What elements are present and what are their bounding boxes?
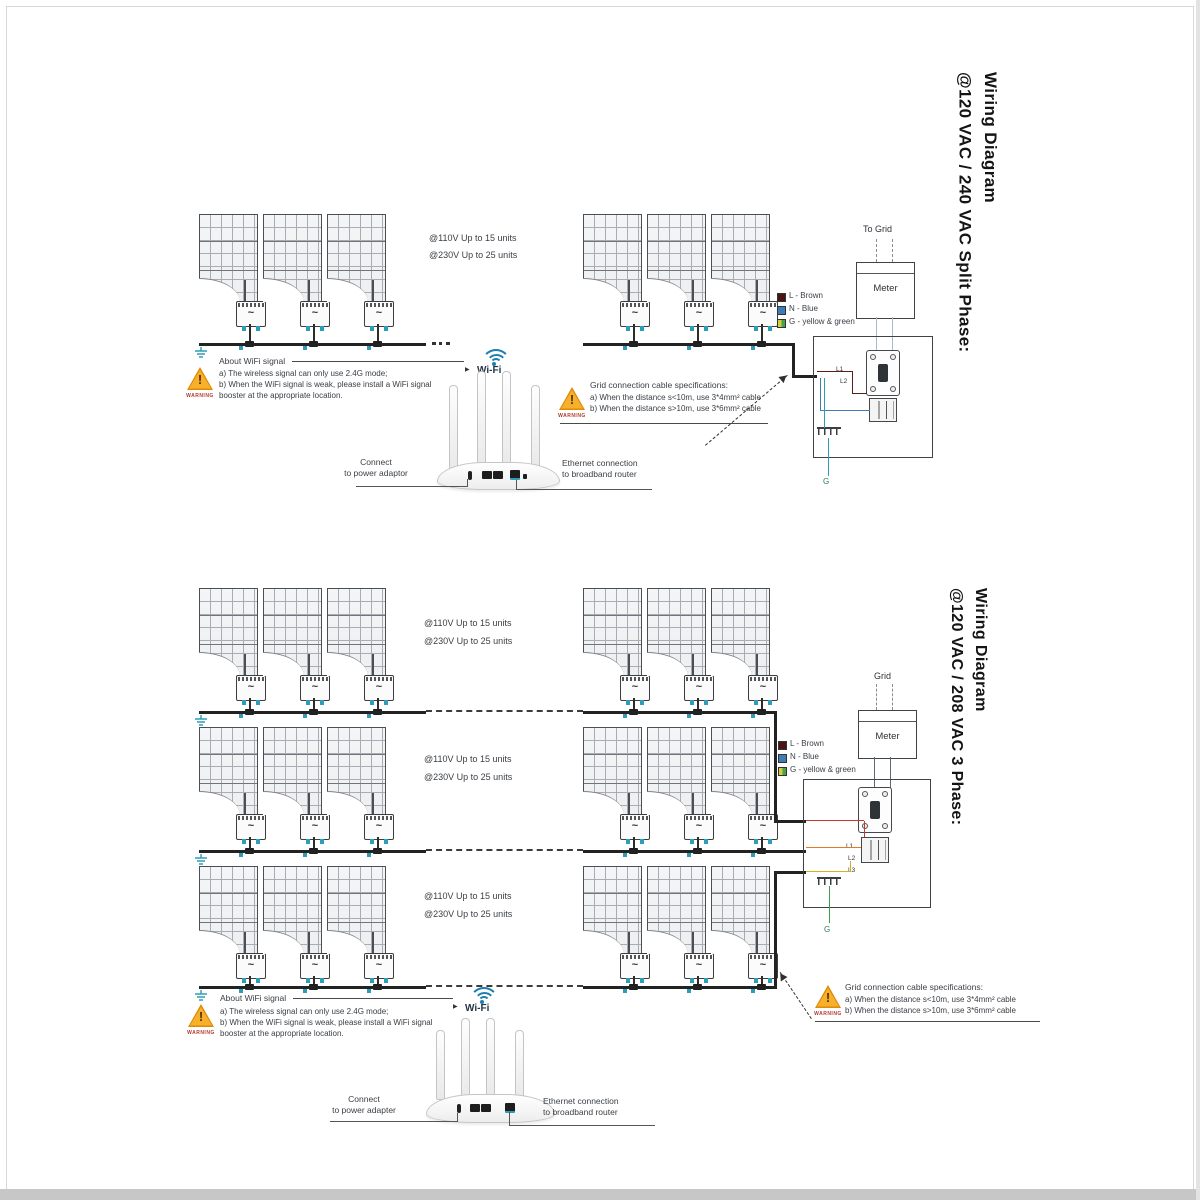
connector-lock-icon [687, 853, 691, 857]
callout-line [509, 1112, 510, 1126]
connector-lock-icon [303, 714, 307, 718]
panel-cable [628, 654, 630, 676]
cable-warning-line: a) When the distance s<10m, use 3*4mm² c… [845, 994, 1016, 1005]
terminal-block [861, 837, 889, 863]
solar-panel [583, 214, 642, 302]
router-ethernet-port [510, 470, 520, 480]
solar-panel [647, 588, 706, 676]
solar-panel [711, 866, 770, 954]
connector-lock-icon [239, 714, 243, 718]
solar-panel [647, 214, 706, 302]
panel-cable [628, 932, 630, 954]
microinverter [684, 301, 714, 327]
pointer-icon [453, 1003, 458, 1010]
router-lan-port [470, 1104, 480, 1112]
trunk-cable [583, 850, 806, 853]
wifi-warning-title: About WiFi signal [220, 993, 286, 1004]
solar-panel [263, 866, 322, 954]
connector-lock-icon [303, 346, 307, 350]
wiring-diagram-page: Wiring Diagram @120 VAC / 240 VAC Split … [0, 0, 1200, 1200]
ground-wire [824, 378, 825, 428]
trunk-cable [199, 343, 426, 346]
callout-line [509, 1125, 655, 1126]
ground-symbol-icon [194, 990, 208, 1003]
capacity-note-110v: @110V Up to 15 units [424, 891, 512, 902]
microinverter [236, 814, 266, 840]
router-antenna [531, 385, 540, 469]
panel-cable [756, 932, 758, 954]
to-grid-label: To Grid [863, 224, 892, 235]
solar-panel [583, 866, 642, 954]
microinverter [236, 675, 266, 701]
solar-panel [263, 214, 322, 302]
microinverter [300, 814, 330, 840]
wifi-label: Wi-Fi [465, 1003, 489, 1014]
microinverter [300, 953, 330, 979]
phase-wire-l1 [806, 820, 864, 821]
warning-badge: WARNING [557, 413, 587, 419]
ground-symbol-icon [194, 854, 208, 867]
phase-wire-l2 [806, 847, 861, 848]
circuit-breaker [866, 350, 900, 396]
legend-label: N - Blue [789, 304, 818, 314]
panel-cable [244, 654, 246, 676]
router-power-port [457, 1104, 461, 1113]
cable-warning-title: Grid connection cable specifications: [845, 982, 983, 993]
solar-panel [199, 727, 258, 815]
router-reset-button [523, 474, 527, 479]
panel-cable [308, 932, 310, 954]
solar-panel [647, 727, 706, 815]
pointer-icon [465, 366, 470, 373]
router-antenna [436, 1030, 445, 1100]
grid-line [876, 684, 877, 710]
trunk-cable [199, 986, 426, 989]
panel-cable [628, 793, 630, 815]
line-wire [852, 393, 867, 394]
legend-swatch-brown [777, 293, 786, 302]
solar-panel-group [199, 588, 399, 722]
microinverter [620, 675, 650, 701]
panel-cable [692, 654, 694, 676]
solar-panel [711, 214, 770, 302]
legend-swatch-yellow-green [777, 319, 786, 328]
router-lan-port [482, 471, 492, 479]
callout-line [330, 1121, 458, 1122]
legend-swatch-yellow-green [778, 767, 787, 776]
capacity-note-110v: @110V Up to 15 units [429, 233, 517, 244]
connector-lock-icon [687, 989, 691, 993]
callout-line [457, 1113, 458, 1122]
solar-panel [711, 727, 770, 815]
capacity-note-230v: @230V Up to 25 units [424, 636, 512, 647]
microinverter [364, 953, 394, 979]
solar-panel [199, 866, 258, 954]
line-wire [817, 371, 852, 372]
panel-cable [308, 654, 310, 676]
microinverter [620, 953, 650, 979]
grid-line [892, 684, 893, 710]
trunk-cable [774, 871, 806, 874]
router-antenna [502, 371, 511, 469]
microinverter [300, 301, 330, 327]
connector-lock-icon [303, 853, 307, 857]
trunk-cable [774, 820, 806, 823]
panel-cable [308, 280, 310, 302]
connector-lock-icon [623, 346, 627, 350]
solar-panel-group [199, 727, 399, 861]
panel-cable [244, 932, 246, 954]
microinverter [748, 301, 778, 327]
phase-wire-l3 [850, 861, 851, 872]
cable-warning-line: a) When the distance s<10m, use 3*4mm² c… [590, 392, 761, 403]
router-antenna [515, 1030, 524, 1100]
ground-bar [817, 877, 841, 886]
legend-label: L - Brown [790, 739, 824, 749]
ground-label: G [823, 477, 829, 487]
callout-underline [560, 423, 768, 424]
warning-triangle-icon: ! [815, 985, 841, 1008]
trunk-cable-continuation [432, 342, 450, 345]
callout-line [293, 998, 453, 999]
solar-panel [647, 866, 706, 954]
solar-panel-group [199, 866, 399, 997]
microinverter [236, 301, 266, 327]
microinverter [684, 814, 714, 840]
cable-warning-title: Grid connection cable specifications: [590, 380, 728, 391]
connector-lock-icon [367, 346, 371, 350]
callout-underline [815, 1021, 1040, 1022]
panel-cable [244, 280, 246, 302]
solar-panel-group [199, 214, 399, 354]
legend-label: G - yellow & green [789, 317, 855, 327]
solar-panel [199, 588, 258, 676]
trunk-cable [583, 343, 794, 346]
microinverter [684, 675, 714, 701]
router-antenna [486, 1018, 495, 1100]
legend-swatch-blue [777, 306, 786, 315]
router-power-port [468, 471, 472, 480]
trunk-cable [199, 711, 426, 714]
trunk-cable [583, 711, 776, 714]
page-right-edge [1196, 0, 1200, 1200]
ethernet-label: Ethernet connectionto broadband router [543, 1096, 619, 1117]
router-antenna [477, 371, 486, 469]
ground-wire [829, 886, 830, 923]
solar-panel-group [583, 866, 783, 997]
legend-swatch-blue [778, 754, 787, 763]
cable-warning-line: b) When the distance s>10m, use 3*6mm² c… [590, 403, 761, 414]
connector-lock-icon [687, 346, 691, 350]
wifi-warning-line: a) The wireless signal can only use 2.4G… [220, 1006, 388, 1017]
panel-cable [308, 793, 310, 815]
meter-box: Meter [856, 262, 915, 319]
panel-cable [372, 280, 374, 302]
line-wire [852, 371, 853, 394]
meter-box: Meter [858, 710, 917, 759]
warning-badge: WARNING [813, 1011, 843, 1017]
capacity-note-230v: @230V Up to 25 units [424, 909, 512, 920]
connector-lock-icon [367, 853, 371, 857]
solar-panel [327, 727, 386, 815]
solar-panel [263, 588, 322, 676]
panel-cable [244, 793, 246, 815]
solar-panel [327, 866, 386, 954]
microinverter [748, 675, 778, 701]
warning-triangle-icon: ! [559, 387, 585, 410]
callout-line [467, 479, 468, 487]
microinverter [684, 953, 714, 979]
panel-cable [628, 280, 630, 302]
capacity-note-230v: @230V Up to 25 units [424, 772, 512, 783]
warning-badge: WARNING [186, 1030, 216, 1036]
legend-label: L - Brown [789, 291, 823, 301]
wifi-warning-title: About WiFi signal [219, 356, 285, 367]
panel-cable [372, 654, 374, 676]
ethernet-label: Ethernet connectionto broadband router [562, 458, 638, 479]
capacity-note-230v: @230V Up to 25 units [429, 250, 517, 261]
power-adaptor-label: Connectto power adaptor [330, 457, 422, 478]
ground-symbol-icon [194, 347, 208, 360]
warning-triangle-icon: ! [188, 1004, 214, 1027]
router-antenna [461, 1018, 470, 1100]
connector-lock-icon [623, 989, 627, 993]
connector-lock-icon [751, 989, 755, 993]
page-bottom-edge [0, 1189, 1200, 1200]
connector-lock-icon [687, 714, 691, 718]
microinverter [364, 301, 394, 327]
solar-panel [199, 214, 258, 302]
ground-bar [817, 427, 841, 436]
trunk-cable [199, 850, 426, 853]
connector-lock-icon [367, 714, 371, 718]
ground-label: G [824, 925, 830, 935]
router-antenna [449, 385, 458, 469]
terminal-block [869, 398, 897, 422]
diagram-title: Wiring Diagram @120 VAC / 208 VAC 3 Phas… [944, 588, 992, 864]
trunk-cable-continuation [426, 985, 583, 987]
callout-line [292, 361, 464, 362]
connector-lock-icon [751, 346, 755, 350]
connector-lock-icon [239, 853, 243, 857]
panel-cable [692, 932, 694, 954]
router-lan-port [481, 1104, 491, 1112]
microinverter [300, 675, 330, 701]
ground-wire [828, 438, 829, 476]
wifi-warning-line: b) When the WiFi signal is weak, please … [219, 379, 432, 390]
connector-lock-icon [623, 853, 627, 857]
solar-panel [327, 588, 386, 676]
trunk-cable [774, 711, 777, 823]
wifi-warning-line: a) The wireless signal can only use 2.4G… [219, 368, 387, 379]
microinverter [620, 301, 650, 327]
neutral-wire [820, 378, 821, 411]
solar-panel [711, 588, 770, 676]
trunk-cable-continuation [426, 710, 583, 712]
ground-symbol-icon [194, 715, 208, 728]
connector-lock-icon [751, 853, 755, 857]
capacity-note-110v: @110V Up to 15 units [424, 754, 512, 765]
solar-panel [263, 727, 322, 815]
grid-label: Grid [874, 671, 891, 682]
cable-warning-line: b) When the distance s>10m, use 3*6mm² c… [845, 1005, 1016, 1016]
solar-panel-group [583, 727, 783, 861]
trunk-cable [792, 343, 795, 378]
connector-lock-icon [751, 714, 755, 718]
connector-lock-icon [367, 989, 371, 993]
microinverter [620, 814, 650, 840]
microinverter [236, 953, 266, 979]
panel-cable [692, 793, 694, 815]
solar-panel [583, 588, 642, 676]
phase-wire-l3 [806, 871, 851, 872]
solar-panel-group [583, 588, 783, 722]
connector-lock-icon [303, 989, 307, 993]
neutral-wire [820, 410, 870, 411]
panel-cable [756, 654, 758, 676]
legend-swatch-brown [778, 741, 787, 750]
microinverter [364, 675, 394, 701]
solar-panel [583, 727, 642, 815]
wifi-warning-line: b) When the WiFi signal is weak, please … [220, 1017, 433, 1028]
connector-lock-icon [239, 346, 243, 350]
diagram-title: Wiring Diagram @120 VAC / 240 VAC Split … [952, 72, 1003, 382]
warning-badge: WARNING [185, 393, 215, 399]
panel-cable [756, 793, 758, 815]
panel-cable [372, 793, 374, 815]
power-adapter-label: Connectto power adapter [318, 1094, 410, 1115]
phase-label: L2 [840, 378, 847, 385]
legend-label: G - yellow & green [790, 765, 856, 775]
callout-line [516, 489, 652, 490]
solar-panel-group [583, 214, 783, 354]
capacity-note-110v: @110V Up to 15 units [424, 618, 512, 629]
trunk-cable-continuation [426, 849, 583, 851]
router-lan-port [493, 471, 503, 479]
grid-line [892, 239, 893, 262]
warning-triangle-icon: ! [187, 367, 213, 390]
wifi-warning-line: booster at the appropriate location. [219, 390, 343, 401]
panel-cable [756, 280, 758, 302]
solar-panel [327, 214, 386, 302]
wifi-warning-line: booster at the appropriate location. [220, 1028, 344, 1039]
connector-lock-icon [623, 714, 627, 718]
phase-wire-l1 [864, 821, 865, 837]
legend-label: N - Blue [790, 752, 819, 762]
trunk-cable [583, 986, 777, 989]
panel-cable [372, 932, 374, 954]
grid-line [876, 239, 877, 262]
panel-cable [692, 280, 694, 302]
callout-line [356, 486, 468, 487]
microinverter [364, 814, 394, 840]
cable-spec-arrow [780, 972, 812, 1019]
